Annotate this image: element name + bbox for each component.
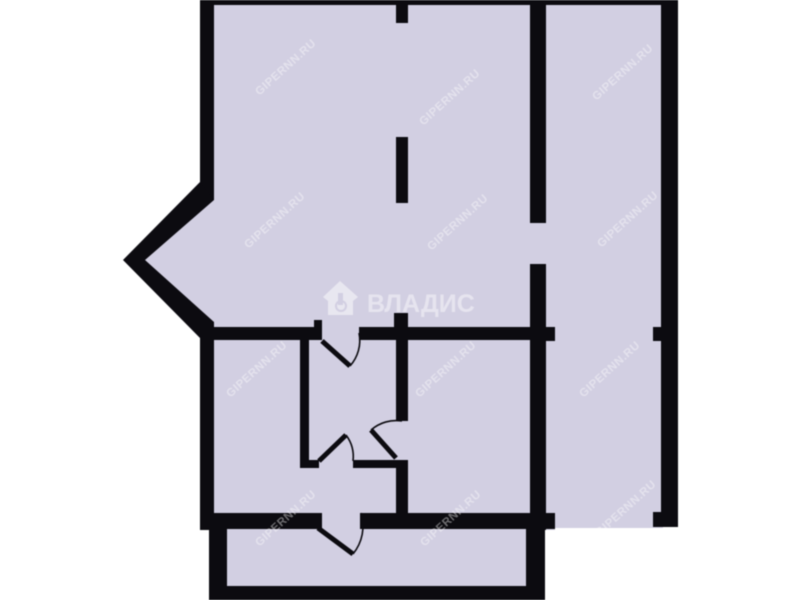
svg-text:ВЛАДИС: ВЛАДИС — [367, 290, 475, 318]
